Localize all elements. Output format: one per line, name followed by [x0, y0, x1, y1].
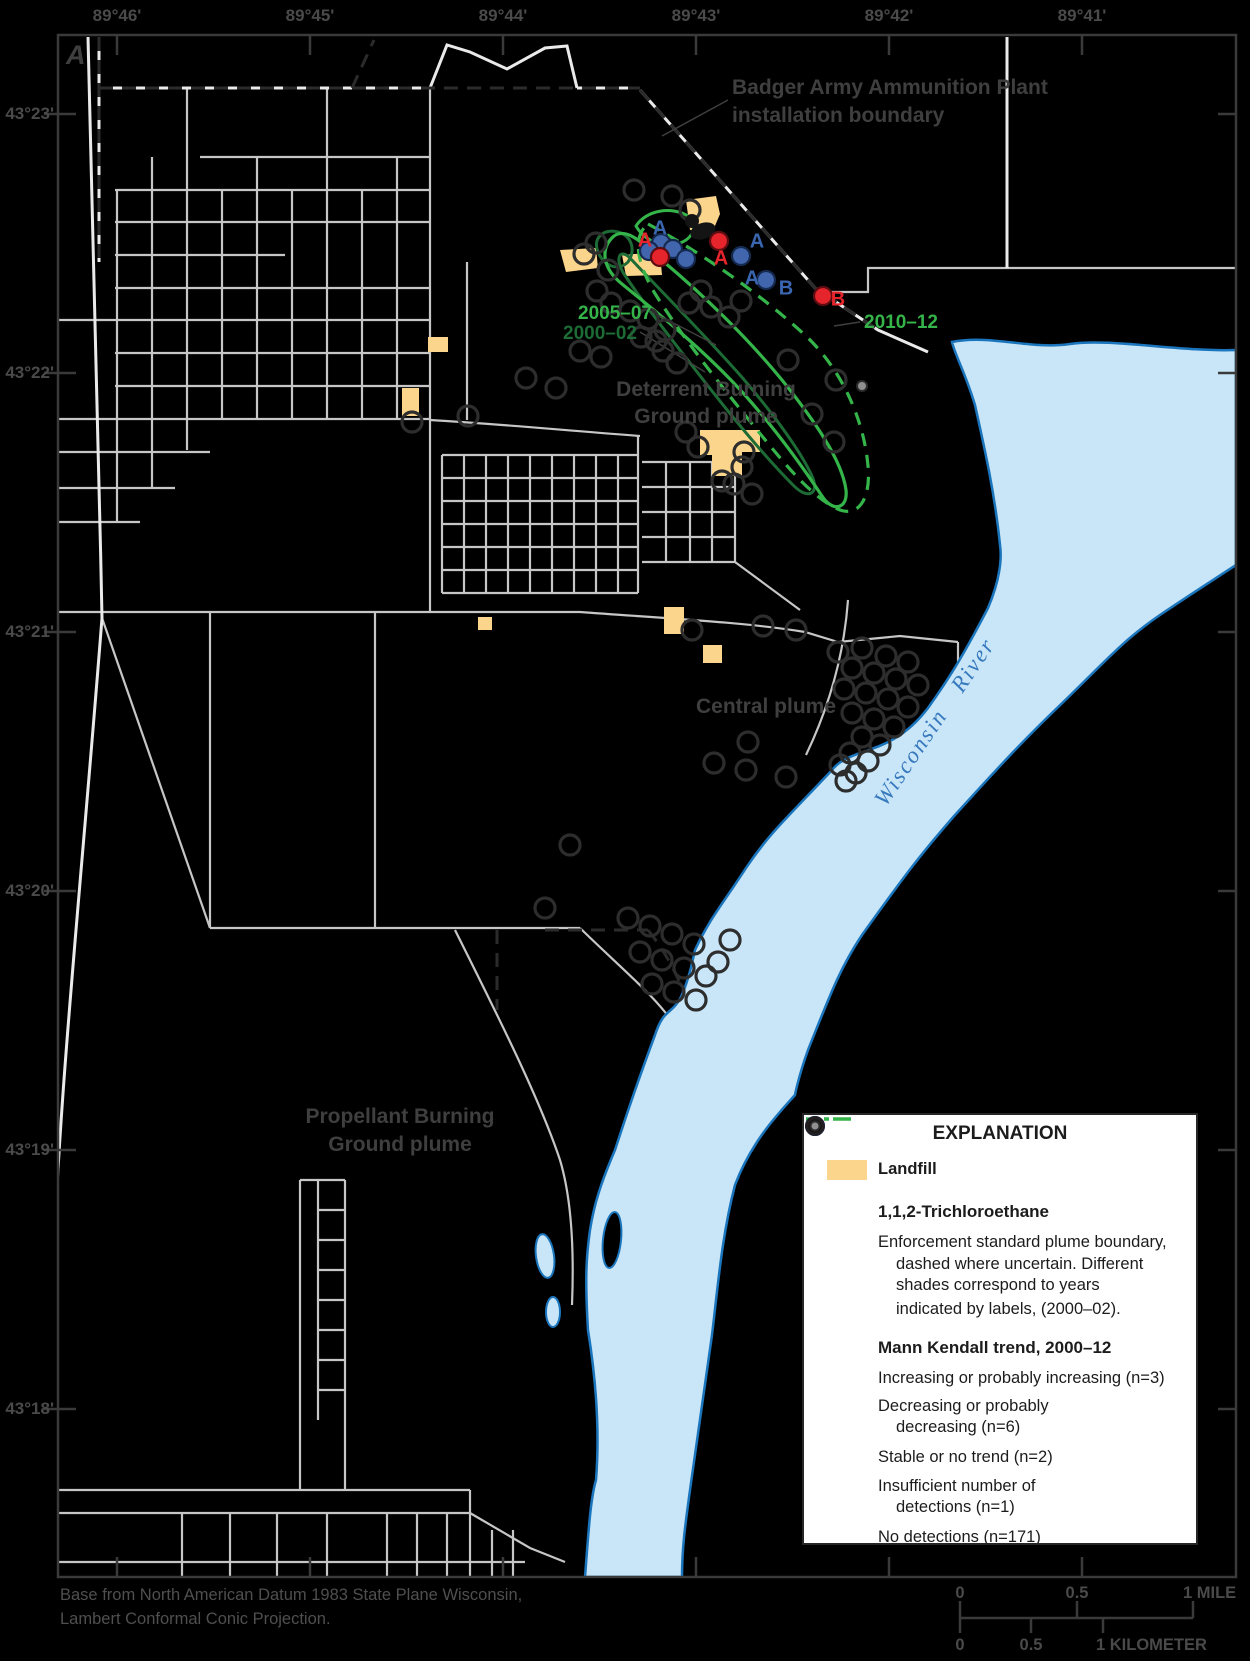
legend-plume-text: dashed where uncertain. Different	[896, 1254, 1167, 1275]
scale-bars	[960, 1601, 1193, 1633]
mile-scale-zero: 0	[955, 1584, 964, 1603]
landfill-swatch-icon	[827, 1160, 867, 1180]
lat-label: 43°22'	[0, 363, 54, 383]
map-figure: 89°46' 89°45' 89°44' 89°43' 89°42' 89°41…	[0, 0, 1250, 1661]
no-detections-icon	[804, 1115, 826, 1137]
mile-scale-half: 0.5	[1066, 1584, 1089, 1603]
legend-insufficient-label: Insufficient number of	[878, 1476, 1035, 1497]
plume-year-2005-07: 2005–07	[578, 303, 652, 325]
panel-label: A	[66, 40, 86, 71]
base-credit-line: Base from North American Datum 1983 Stat…	[60, 1586, 522, 1605]
base-credit-line: Lambert Conformal Conic Projection.	[60, 1610, 331, 1629]
legend-plume-text: Enforcement standard plume boundary,	[878, 1232, 1167, 1253]
lat-label: 43°21'	[0, 622, 54, 642]
legend-plume-text: shades correspond to years	[896, 1275, 1167, 1296]
deterrent-plume-label: Deterrent Burning	[616, 378, 796, 402]
lon-label: 89°45'	[286, 6, 335, 26]
well-marker-b: B	[779, 278, 793, 301]
well-marker-a: A	[638, 230, 652, 253]
installation-boundary-label: installation boundary	[732, 104, 944, 128]
lon-label: 89°41'	[1058, 6, 1107, 26]
lon-label: 89°44'	[479, 6, 528, 26]
well-marker-a: A	[750, 231, 764, 254]
lat-label: 43°19'	[0, 1140, 54, 1160]
legend-trend-heading: Mann Kendall trend, 2000–12	[878, 1338, 1184, 1358]
lon-label: 89°43'	[672, 6, 721, 26]
insufficient-detections-well	[857, 381, 867, 391]
legend-landfill-label: Landfill	[878, 1159, 937, 1180]
central-plume-label: Central plume	[696, 695, 836, 719]
lat-label: 43°20'	[0, 881, 54, 901]
well-marker-a: A	[714, 248, 728, 271]
well-marker-b: B	[831, 289, 845, 312]
installation-boundary-label: Badger Army Ammunition Plant	[732, 76, 1048, 100]
legend-stable-label: Stable or no trend (n=2)	[878, 1447, 1053, 1468]
lat-label: 43°18'	[0, 1399, 54, 1419]
legend-box: EXPLANATION Landfill 1,1,2-Trichloroetha…	[802, 1113, 1198, 1545]
propellant-plume-label: Ground plume	[328, 1133, 472, 1157]
legend-none-label: No detections (n=171)	[878, 1527, 1041, 1545]
legend-title: EXPLANATION	[816, 1123, 1184, 1145]
plume-year-2010-12: 2010–12	[864, 312, 938, 334]
well-marker-a: A	[653, 218, 667, 241]
mile-scale-one: 1 MILE	[1183, 1584, 1236, 1603]
plume-year-2000-02: 2000–02	[563, 323, 637, 345]
km-scale-zero: 0	[955, 1636, 964, 1655]
legend-decreasing-label: decreasing (n=6)	[896, 1417, 1049, 1438]
km-scale-one: 1 KILOMETER	[1096, 1636, 1207, 1655]
lat-label: 43°23'	[0, 104, 54, 124]
legend-chemical-heading: 1,1,2-Trichloroethane	[878, 1202, 1184, 1222]
lon-label: 89°46'	[93, 6, 142, 26]
legend-insufficient-label: detections (n=1)	[896, 1497, 1035, 1518]
km-scale-half: 0.5	[1020, 1636, 1043, 1655]
well-marker-a: A	[745, 268, 759, 291]
legend-increasing-label: Increasing or probably increasing (n=3)	[878, 1368, 1165, 1389]
legend-decreasing-label: Decreasing or probably	[878, 1396, 1049, 1417]
legend-plume-text: indicated by labels, (2000–02).	[896, 1299, 1167, 1320]
lon-label: 89°42'	[865, 6, 914, 26]
deterrent-plume-label: Ground plume	[634, 405, 778, 429]
propellant-plume-label: Propellant Burning	[306, 1105, 495, 1129]
